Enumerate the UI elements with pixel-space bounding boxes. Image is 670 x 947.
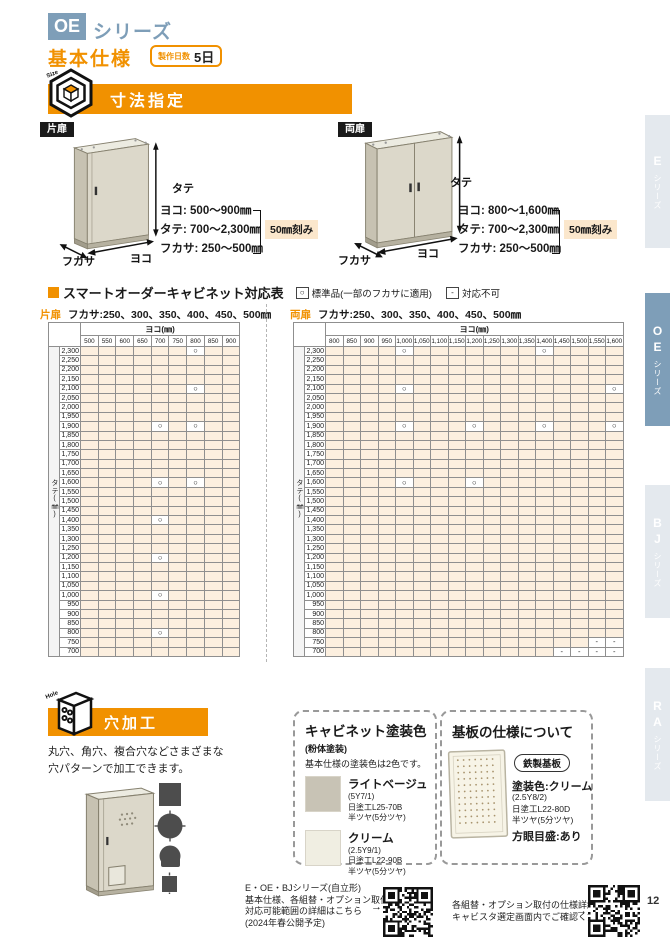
compat-cell: ○ <box>466 422 484 431</box>
row-header: 1,800 <box>60 440 81 449</box>
compat-cell <box>588 609 606 618</box>
compat-cell <box>187 600 205 609</box>
compat-cell <box>116 384 134 393</box>
compat-cell <box>518 393 536 402</box>
compat-cell <box>204 412 222 421</box>
compat-cell <box>169 450 187 459</box>
depth-note: フカサ:250、300、350、400、450、500㎜ <box>318 309 521 321</box>
compat-cell <box>571 365 589 374</box>
compat-cell <box>483 534 501 543</box>
compat-cell <box>448 487 466 496</box>
compat-cell <box>466 591 484 600</box>
compat-cell <box>134 403 152 412</box>
compat-cell <box>501 412 519 421</box>
compat-cell <box>222 619 240 628</box>
compat-cell <box>413 403 431 412</box>
double-table-heading: 両扉フカサ:250、300、350、400、450、500㎜ <box>290 307 521 322</box>
compat-cell <box>396 619 414 628</box>
compat-cell <box>222 487 240 496</box>
lead-time-badge: 製作日数 5日 <box>150 45 222 67</box>
compat-cell <box>536 534 554 543</box>
compat-cell <box>222 534 240 543</box>
compat-cell <box>553 619 571 628</box>
compat-cell <box>222 440 240 449</box>
compat-cell <box>151 365 169 374</box>
compat-cell <box>343 506 361 515</box>
compat-cell <box>169 506 187 515</box>
double-door-specs: ヨコ: 800〜1,600㎜タテ: 700〜2,300㎜フカサ: 250〜500… <box>458 202 563 259</box>
compat-cell <box>361 525 379 534</box>
compat-cell <box>98 422 116 431</box>
compat-cell <box>204 506 222 515</box>
compat-cell <box>134 506 152 515</box>
compat-cell <box>134 525 152 534</box>
hole-icon-label: Hole <box>45 690 60 701</box>
compat-cell <box>378 403 396 412</box>
compat-cell <box>606 356 624 365</box>
compat-cell <box>448 600 466 609</box>
row-header: 700 <box>60 647 81 656</box>
compat-cell <box>448 365 466 374</box>
compat-cell <box>466 600 484 609</box>
compat-cell <box>483 403 501 412</box>
paint-color-row: ライトベージュ(5Y7/1)日塗工L25-70B半ツヤ(5分ツヤ) <box>305 776 426 824</box>
compat-cell <box>98 478 116 487</box>
compat-cell <box>466 365 484 374</box>
compat-cell <box>187 440 205 449</box>
compat-cell <box>116 412 134 421</box>
compat-cell <box>98 553 116 562</box>
compat-cell <box>343 412 361 421</box>
compat-cell <box>169 591 187 600</box>
row-header: 2,300 <box>60 347 81 356</box>
row-header: 950 <box>305 600 326 609</box>
compat-cell <box>81 619 99 628</box>
compat-cell <box>134 638 152 647</box>
compat-cell <box>553 544 571 553</box>
compat-cell <box>151 600 169 609</box>
compat-cell <box>343 440 361 449</box>
compat-cell <box>571 544 589 553</box>
compat-cell <box>501 478 519 487</box>
compat-cell <box>361 412 379 421</box>
sidebar-tab-ra-series[interactable]: RAシリーズ <box>645 668 670 801</box>
compat-cell <box>343 628 361 637</box>
qr-code-left <box>383 887 433 937</box>
compat-cell <box>431 600 449 609</box>
row-header: 2,050 <box>60 393 81 402</box>
compat-cell <box>326 440 344 449</box>
table-divider <box>266 304 267 662</box>
compat-cell <box>361 553 379 562</box>
compat-cell <box>81 516 99 525</box>
compat-cell <box>204 497 222 506</box>
compat-cell <box>413 365 431 374</box>
compat-cell <box>151 469 169 478</box>
compat-cell <box>116 562 134 571</box>
compat-cell <box>98 628 116 637</box>
lead-time-value: 5日 <box>194 47 214 66</box>
compat-cell <box>361 628 379 637</box>
compat-cell <box>134 422 152 431</box>
compat-cell <box>134 572 152 581</box>
compat-cell <box>483 393 501 402</box>
row-header: 1,450 <box>60 506 81 515</box>
compat-cell <box>134 347 152 356</box>
compat-cell <box>606 459 624 468</box>
row-header: 2,050 <box>305 393 326 402</box>
compat-cell <box>187 516 205 525</box>
compat-cell <box>588 450 606 459</box>
compat-cell <box>501 375 519 384</box>
row-header: 1,250 <box>60 544 81 553</box>
compat-cell <box>204 375 222 384</box>
compat-cell <box>518 384 536 393</box>
compat-cell <box>431 412 449 421</box>
compat-cell <box>222 591 240 600</box>
compat-cell <box>98 440 116 449</box>
row-header: 750 <box>60 638 81 647</box>
compat-cell <box>396 562 414 571</box>
compat-cell <box>571 619 589 628</box>
compat-cell <box>204 365 222 374</box>
compat-cell <box>571 497 589 506</box>
row-header: 1,300 <box>305 534 326 543</box>
compat-cell <box>448 619 466 628</box>
compat-cell <box>571 469 589 478</box>
compat-cell <box>326 591 344 600</box>
dimension-spec-line: ヨコ: 800〜1,600㎜ <box>458 202 563 221</box>
compat-cell <box>396 375 414 384</box>
compat-cell <box>116 609 134 618</box>
compat-cell <box>204 469 222 478</box>
compat-cell: ○ <box>536 347 554 356</box>
compat-cell <box>361 581 379 590</box>
compat-cell <box>326 647 344 656</box>
compat-cell <box>588 356 606 365</box>
width-dim-label: ヨコ <box>417 245 439 261</box>
compat-cell <box>536 609 554 618</box>
compat-cell <box>204 638 222 647</box>
compat-cell <box>606 572 624 581</box>
compat-cell <box>361 403 379 412</box>
compat-cell <box>222 553 240 562</box>
compat-cell <box>134 365 152 374</box>
compat-cell <box>343 534 361 543</box>
compat-cell <box>116 440 134 449</box>
compat-cell <box>431 516 449 525</box>
compat-cell <box>187 412 205 421</box>
compat-cell <box>413 638 431 647</box>
compat-cell <box>98 347 116 356</box>
compat-cell <box>222 393 240 402</box>
compat-cell <box>483 478 501 487</box>
compat-cell <box>571 534 589 543</box>
compat-cell <box>169 403 187 412</box>
compat-cell <box>536 497 554 506</box>
row-header: 1,950 <box>305 412 326 421</box>
compat-cell <box>431 478 449 487</box>
compat-cell <box>343 384 361 393</box>
compat-cell <box>431 497 449 506</box>
sidebar-tab-oe-series[interactable]: OEシリーズ <box>645 293 670 426</box>
compat-cell <box>501 609 519 618</box>
compat-cell <box>204 459 222 468</box>
compat-cell <box>571 422 589 431</box>
compat-cell <box>204 609 222 618</box>
compat-cell <box>204 572 222 581</box>
compat-cell <box>134 497 152 506</box>
compat-cell <box>448 628 466 637</box>
compat-cell <box>98 450 116 459</box>
compat-cell <box>571 506 589 515</box>
compat-cell <box>396 647 414 656</box>
compat-cell <box>134 469 152 478</box>
paint-munsell: (5Y7/1) <box>348 792 427 803</box>
compat-cell <box>466 628 484 637</box>
compat-cell <box>81 638 99 647</box>
compat-cell <box>169 525 187 534</box>
legend-item: -対応不可 <box>446 286 500 300</box>
compat-cell <box>466 647 484 656</box>
compat-cell <box>413 553 431 562</box>
sidebar-tab-bj-series[interactable]: BJシリーズ <box>645 485 670 618</box>
compat-cell <box>536 572 554 581</box>
compat-cell <box>518 469 536 478</box>
compat-cell <box>448 450 466 459</box>
compat-cell <box>343 487 361 496</box>
row-header: 1,100 <box>60 572 81 581</box>
compat-cell <box>431 450 449 459</box>
compat-cell <box>378 393 396 402</box>
compat-cell <box>169 638 187 647</box>
row-header: 1,850 <box>305 431 326 440</box>
compat-cell <box>116 534 134 543</box>
compat-cell <box>116 628 134 637</box>
size-cube-icon: Size <box>46 68 96 118</box>
compat-cell <box>151 619 169 628</box>
compat-cell <box>326 628 344 637</box>
compat-cell: ○ <box>466 478 484 487</box>
base-plate-title: 基板の仕様について <box>452 721 573 741</box>
row-header: 2,300 <box>305 347 326 356</box>
compat-cell: - <box>571 647 589 656</box>
compat-cell <box>98 403 116 412</box>
compat-cell <box>553 384 571 393</box>
compat-cell <box>606 403 624 412</box>
paint-code: 日塗工L25-70B <box>348 803 427 814</box>
compat-cell <box>413 581 431 590</box>
compat-cell <box>187 544 205 553</box>
compat-cell <box>81 600 99 609</box>
compat-cell <box>361 375 379 384</box>
compat-cell <box>222 647 240 656</box>
compat-cell <box>396 506 414 515</box>
row-header: 1,200 <box>305 553 326 562</box>
compat-cell <box>151 347 169 356</box>
compat-cell <box>466 347 484 356</box>
compat-cell <box>134 534 152 543</box>
base-grid-label: 方眼目盛:あり <box>512 828 582 844</box>
compat-cell <box>396 469 414 478</box>
compat-cell <box>483 609 501 618</box>
compat-cell <box>98 591 116 600</box>
row-header: 1,400 <box>305 516 326 525</box>
compat-cell <box>571 384 589 393</box>
compat-cell <box>536 581 554 590</box>
compat-cell <box>134 544 152 553</box>
compat-cell <box>361 478 379 487</box>
compat-cell <box>396 638 414 647</box>
col-header: 750 <box>169 336 187 347</box>
compat-cell <box>98 562 116 571</box>
compat-cell <box>536 600 554 609</box>
compat-cell <box>378 581 396 590</box>
compat-cell <box>571 450 589 459</box>
compat-cell <box>588 628 606 637</box>
compat-cell <box>588 572 606 581</box>
col-header: 1,000 <box>396 336 414 347</box>
compat-cell <box>343 525 361 534</box>
compat-cell <box>483 440 501 449</box>
compat-cell <box>553 506 571 515</box>
compat-cell <box>326 403 344 412</box>
row-header: 1,500 <box>305 497 326 506</box>
compat-cell <box>98 469 116 478</box>
compat-cell <box>483 431 501 440</box>
compat-cell <box>169 562 187 571</box>
row-header: 2,150 <box>305 375 326 384</box>
compat-cell <box>378 525 396 534</box>
compat-cell <box>169 478 187 487</box>
compat-cell <box>326 412 344 421</box>
compat-cell <box>466 469 484 478</box>
height-dim-label: タテ <box>450 174 472 190</box>
compat-cell <box>343 572 361 581</box>
compat-cell <box>81 393 99 402</box>
compat-cell <box>98 647 116 656</box>
page-title: 基本仕様 <box>48 44 132 71</box>
compat-cell <box>378 356 396 365</box>
compat-cell <box>378 516 396 525</box>
compat-cell <box>396 553 414 562</box>
compat-cell <box>326 525 344 534</box>
compat-cell <box>536 487 554 496</box>
compat-cell <box>116 497 134 506</box>
compat-cell <box>483 365 501 374</box>
sidebar-tab-e-series[interactable]: Eシリーズ <box>645 115 670 248</box>
height-dim-label: タテ <box>172 180 194 196</box>
compat-cell <box>518 591 536 600</box>
compat-cell <box>151 431 169 440</box>
compat-cell <box>536 562 554 571</box>
row-axis-label: タテ(㎜) <box>294 347 305 657</box>
compat-cell <box>518 347 536 356</box>
compat-cell <box>343 544 361 553</box>
compat-cell: ○ <box>151 478 169 487</box>
compat-cell <box>204 384 222 393</box>
row-header: 700 <box>305 647 326 656</box>
compat-cell <box>448 440 466 449</box>
compat-cell <box>187 619 205 628</box>
compat-cell: - <box>588 638 606 647</box>
compat-cell: ○ <box>187 384 205 393</box>
compat-cell <box>222 412 240 421</box>
compat-cell <box>466 497 484 506</box>
compat-cell <box>326 497 344 506</box>
compat-cell <box>518 506 536 515</box>
compat-cell <box>501 572 519 581</box>
series-code-box: OE <box>48 13 86 40</box>
compat-cell <box>169 581 187 590</box>
compat-cell <box>588 600 606 609</box>
compat-cell <box>343 431 361 440</box>
compat-cell <box>431 393 449 402</box>
compat-cell <box>483 506 501 515</box>
compat-cell: ○ <box>396 478 414 487</box>
compat-cell <box>98 600 116 609</box>
compat-cell <box>361 365 379 374</box>
col-header: 500 <box>81 336 99 347</box>
compat-cell <box>571 562 589 571</box>
compat-cell <box>466 516 484 525</box>
compat-cell <box>606 600 624 609</box>
compat-cell <box>396 393 414 402</box>
compat-cell <box>98 516 116 525</box>
compat-cell <box>588 506 606 515</box>
compat-cell <box>81 356 99 365</box>
compat-cell <box>571 347 589 356</box>
compat-cell <box>204 600 222 609</box>
compat-cell <box>483 581 501 590</box>
row-header: 850 <box>60 619 81 628</box>
col-axis-label: ヨコ(㎜) <box>81 323 240 336</box>
row-header: 2,200 <box>305 365 326 374</box>
row-header: 900 <box>60 609 81 618</box>
compat-cell <box>98 459 116 468</box>
compat-cell <box>431 347 449 356</box>
compat-cell <box>501 450 519 459</box>
compat-cell <box>518 544 536 553</box>
compat-cell <box>98 544 116 553</box>
compat-cell <box>116 356 134 365</box>
compat-cell <box>151 450 169 459</box>
compat-cell <box>448 478 466 487</box>
compat-cell <box>204 487 222 496</box>
paint-name: ライトベージュ <box>348 776 427 792</box>
compat-cell <box>518 553 536 562</box>
compat-cell <box>116 619 134 628</box>
compat-cell <box>187 647 205 656</box>
col-header: 950 <box>378 336 396 347</box>
compat-cell <box>518 572 536 581</box>
compat-cell <box>169 365 187 374</box>
compat-cell <box>81 534 99 543</box>
compat-cell <box>343 365 361 374</box>
compat-cell <box>431 403 449 412</box>
paint-box-note: 基本仕様の塗装色は2色です。 <box>305 757 426 770</box>
compat-cell <box>553 572 571 581</box>
compat-cell <box>326 422 344 431</box>
compat-cell <box>448 403 466 412</box>
compat-cell <box>378 638 396 647</box>
compat-cell <box>413 544 431 553</box>
compat-cell <box>588 516 606 525</box>
compat-cell <box>116 591 134 600</box>
compat-cell <box>571 412 589 421</box>
compat-cell <box>413 478 431 487</box>
row-header: 1,900 <box>60 422 81 431</box>
